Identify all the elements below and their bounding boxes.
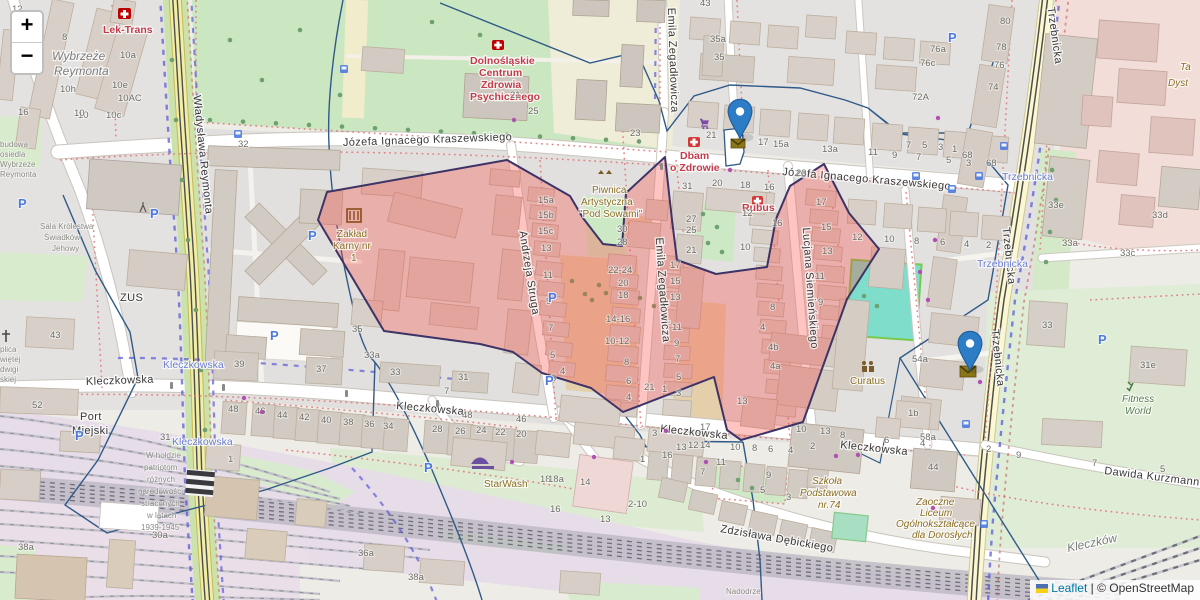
svg-text:22-24: 22-24 bbox=[608, 265, 632, 276]
svg-text:Karny nr: Karny nr bbox=[333, 241, 371, 252]
svg-text:8: 8 bbox=[914, 236, 919, 247]
svg-text:Szkoła: Szkoła bbox=[812, 476, 842, 487]
svg-text:2: 2 bbox=[986, 444, 991, 455]
svg-text:76a: 76a bbox=[930, 44, 947, 55]
svg-text:23: 23 bbox=[630, 128, 641, 139]
svg-text:P: P bbox=[948, 30, 957, 45]
svg-text:31: 31 bbox=[682, 181, 693, 192]
svg-text:1: 1 bbox=[952, 144, 957, 155]
svg-text:17: 17 bbox=[670, 260, 681, 271]
svg-text:1: 1 bbox=[662, 384, 667, 395]
svg-text:2: 2 bbox=[810, 441, 815, 452]
svg-text:26: 26 bbox=[455, 426, 466, 437]
svg-text:patriotom: patriotom bbox=[144, 463, 178, 472]
svg-text:osiedla: osiedla bbox=[0, 150, 26, 159]
svg-text:Fitness: Fitness bbox=[1122, 394, 1154, 405]
svg-text:Kleczkowska: Kleczkowska bbox=[163, 359, 224, 371]
svg-text:11: 11 bbox=[716, 457, 726, 468]
svg-text:33e: 33e bbox=[1048, 200, 1064, 211]
svg-text:P: P bbox=[424, 460, 433, 475]
svg-text:33a: 33a bbox=[364, 350, 381, 361]
svg-text:22: 22 bbox=[495, 427, 506, 438]
svg-text:13: 13 bbox=[676, 442, 687, 453]
svg-text:o Zdrowie: o Zdrowie bbox=[670, 162, 720, 174]
svg-text:14: 14 bbox=[700, 440, 711, 451]
svg-text:13: 13 bbox=[822, 246, 833, 257]
svg-text:14-16: 14-16 bbox=[606, 314, 630, 325]
svg-text:54a: 54a bbox=[912, 354, 929, 365]
svg-text:18a: 18a bbox=[548, 474, 565, 485]
svg-text:4: 4 bbox=[760, 322, 765, 333]
svg-text:W hołdzie: W hołdzie bbox=[146, 451, 182, 460]
svg-text:76: 76 bbox=[994, 60, 1005, 71]
svg-text:10h: 10h bbox=[60, 84, 76, 95]
svg-text:31: 31 bbox=[160, 432, 171, 443]
svg-text:30: 30 bbox=[617, 224, 628, 235]
svg-text:dwigi: dwigi bbox=[0, 365, 18, 374]
svg-text:10: 10 bbox=[74, 108, 85, 119]
svg-text:34: 34 bbox=[383, 421, 394, 432]
svg-text:5: 5 bbox=[676, 372, 681, 383]
svg-text:4: 4 bbox=[964, 239, 969, 250]
svg-text:17: 17 bbox=[700, 422, 711, 433]
svg-text:28: 28 bbox=[617, 237, 628, 248]
svg-text:3: 3 bbox=[786, 492, 791, 503]
svg-text:Dolnośląskie: Dolnośląskie bbox=[470, 55, 535, 67]
svg-text:nr.74: nr.74 bbox=[818, 500, 841, 511]
svg-text:Centrum: Centrum bbox=[479, 67, 522, 79]
svg-text:P: P bbox=[270, 328, 279, 343]
svg-text:9: 9 bbox=[674, 338, 679, 349]
svg-text:43: 43 bbox=[700, 0, 711, 9]
svg-text:18: 18 bbox=[618, 290, 629, 301]
svg-text:3: 3 bbox=[676, 388, 681, 399]
svg-text:9: 9 bbox=[1016, 450, 1021, 461]
svg-text:5: 5 bbox=[946, 155, 951, 166]
svg-text:narodowości: narodowości bbox=[138, 487, 183, 496]
svg-text:Wybrzeże: Wybrzeże bbox=[52, 49, 106, 63]
svg-text:7: 7 bbox=[548, 323, 553, 334]
svg-text:P: P bbox=[150, 206, 159, 221]
svg-text:40: 40 bbox=[321, 415, 332, 426]
svg-text:Trzebnicka: Trzebnicka bbox=[1002, 171, 1053, 183]
svg-text:12: 12 bbox=[688, 440, 699, 451]
svg-text:P: P bbox=[308, 228, 317, 243]
svg-text:Ogólnokształcące: Ogólnokształcące bbox=[896, 519, 975, 530]
svg-text:4: 4 bbox=[626, 392, 631, 403]
svg-text:Lek-Trans: Lek-Trans bbox=[103, 24, 153, 36]
svg-text:37: 37 bbox=[316, 364, 327, 375]
svg-text:18: 18 bbox=[740, 180, 751, 191]
svg-text:15: 15 bbox=[670, 276, 681, 287]
svg-text:10a: 10a bbox=[120, 50, 137, 61]
svg-text:43: 43 bbox=[50, 330, 61, 341]
svg-text:72A: 72A bbox=[912, 92, 930, 103]
svg-text:różnych: różnych bbox=[147, 475, 175, 484]
svg-text:17: 17 bbox=[758, 137, 769, 148]
svg-text:Curatus: Curatus bbox=[850, 376, 885, 387]
svg-text:68: 68 bbox=[962, 150, 973, 161]
svg-text:74: 74 bbox=[988, 82, 999, 93]
svg-text:StarWash: StarWash bbox=[484, 479, 528, 490]
svg-text:21: 21 bbox=[686, 245, 697, 256]
svg-text:4: 4 bbox=[560, 366, 565, 377]
svg-text:7: 7 bbox=[906, 140, 911, 151]
svg-text:36: 36 bbox=[364, 419, 375, 430]
svg-text:16: 16 bbox=[18, 107, 29, 118]
svg-text:5: 5 bbox=[550, 350, 555, 361]
svg-text:15a: 15a bbox=[538, 195, 555, 206]
svg-text:14: 14 bbox=[580, 477, 591, 488]
svg-text:Psychicznego: Psychicznego bbox=[470, 91, 540, 103]
svg-text:33a: 33a bbox=[1062, 238, 1079, 249]
svg-text:Dyst: Dyst bbox=[1168, 78, 1189, 89]
svg-text:w latach: w latach bbox=[146, 511, 176, 520]
svg-text:8: 8 bbox=[62, 32, 67, 43]
svg-text:Podstawowa: Podstawowa bbox=[800, 488, 857, 499]
svg-text:budowa: budowa bbox=[0, 140, 29, 149]
svg-text:24: 24 bbox=[476, 425, 487, 436]
svg-text:16: 16 bbox=[764, 182, 775, 193]
svg-text:P: P bbox=[548, 290, 557, 305]
svg-text:39: 39 bbox=[234, 359, 245, 370]
svg-text:21: 21 bbox=[706, 130, 717, 141]
svg-text:5: 5 bbox=[1160, 464, 1165, 475]
svg-text:68: 68 bbox=[986, 158, 997, 169]
svg-text:13: 13 bbox=[737, 396, 748, 407]
svg-text:46: 46 bbox=[516, 414, 527, 425]
svg-text:48: 48 bbox=[228, 404, 239, 415]
svg-text:Reymonta: Reymonta bbox=[0, 170, 37, 179]
svg-text:Zakład: Zakład bbox=[337, 229, 367, 240]
svg-text:Reymonta: Reymonta bbox=[54, 64, 109, 78]
svg-text:ZUS: ZUS bbox=[120, 292, 143, 304]
svg-text:21: 21 bbox=[510, 90, 521, 101]
svg-text:11: 11 bbox=[543, 270, 553, 281]
svg-text:Zaoczne: Zaoczne bbox=[915, 497, 955, 508]
svg-text:35a: 35a bbox=[710, 34, 727, 45]
svg-text:P: P bbox=[18, 196, 27, 211]
svg-text:Wybrzeże: Wybrzeże bbox=[0, 160, 36, 169]
svg-text:38a: 38a bbox=[18, 542, 35, 553]
svg-text:30a: 30a bbox=[152, 530, 169, 541]
svg-text:21: 21 bbox=[644, 382, 655, 393]
svg-text:11: 11 bbox=[672, 322, 682, 333]
svg-text:2: 2 bbox=[986, 240, 991, 251]
svg-text:World: World bbox=[1125, 406, 1152, 417]
svg-text:10-12: 10-12 bbox=[605, 336, 629, 347]
svg-text:13: 13 bbox=[820, 426, 831, 437]
svg-text:9: 9 bbox=[818, 297, 823, 308]
svg-text:78: 78 bbox=[996, 42, 1007, 53]
svg-text:33: 33 bbox=[390, 367, 401, 378]
svg-text:1b: 1b bbox=[908, 408, 919, 419]
svg-text:P: P bbox=[545, 373, 554, 388]
svg-text:13: 13 bbox=[600, 514, 611, 525]
svg-text:6: 6 bbox=[626, 376, 631, 387]
svg-text:Piwnica: Piwnica bbox=[592, 185, 627, 196]
svg-text:4: 4 bbox=[920, 438, 925, 449]
svg-text:Sala Królestwa: Sala Królestwa bbox=[40, 222, 94, 231]
svg-text:6: 6 bbox=[940, 237, 945, 248]
svg-text:33c: 33c bbox=[1120, 248, 1136, 259]
svg-text:10: 10 bbox=[740, 242, 751, 253]
svg-text:11: 11 bbox=[815, 271, 825, 282]
svg-text:20: 20 bbox=[618, 278, 629, 289]
svg-text:12: 12 bbox=[852, 232, 863, 243]
svg-text:13a: 13a bbox=[822, 144, 839, 155]
svg-text:12: 12 bbox=[742, 208, 753, 219]
svg-text:Liceum: Liceum bbox=[920, 508, 952, 519]
svg-text:17: 17 bbox=[816, 197, 827, 208]
svg-text:10: 10 bbox=[884, 234, 895, 245]
svg-text:25: 25 bbox=[528, 106, 539, 117]
svg-text:48: 48 bbox=[462, 410, 473, 421]
svg-text:38: 38 bbox=[343, 417, 354, 428]
svg-text:P: P bbox=[1098, 332, 1107, 347]
svg-text:7: 7 bbox=[700, 467, 705, 478]
svg-text:15b: 15b bbox=[538, 210, 554, 221]
svg-text:11: 11 bbox=[868, 147, 878, 158]
svg-text:Jehowy: Jehowy bbox=[52, 244, 79, 253]
svg-text:8: 8 bbox=[840, 430, 845, 441]
svg-text:23: 23 bbox=[796, 168, 807, 179]
svg-text:36a: 36a bbox=[358, 548, 375, 559]
svg-text:15a: 15a bbox=[773, 139, 790, 150]
svg-text:6: 6 bbox=[884, 435, 889, 446]
svg-text:Świadków: Świadków bbox=[44, 233, 80, 242]
svg-text:7: 7 bbox=[675, 354, 680, 365]
svg-text:8: 8 bbox=[752, 443, 757, 454]
svg-text:P: P bbox=[75, 428, 84, 443]
svg-text:10e: 10e bbox=[112, 80, 128, 91]
svg-text:31: 31 bbox=[458, 372, 469, 383]
svg-text:80: 80 bbox=[1000, 16, 1011, 27]
svg-text:7: 7 bbox=[1092, 458, 1097, 469]
svg-text:6: 6 bbox=[768, 444, 773, 455]
svg-text:15c: 15c bbox=[538, 226, 554, 237]
svg-text:33: 33 bbox=[1042, 320, 1053, 331]
svg-text:16: 16 bbox=[662, 450, 673, 461]
svg-text:38a: 38a bbox=[408, 572, 425, 583]
svg-text:20: 20 bbox=[712, 178, 723, 189]
svg-text:3: 3 bbox=[938, 142, 943, 153]
svg-text:"Pod Sowami": "Pod Sowami" bbox=[579, 209, 643, 220]
svg-text:dla Dorosłych: dla Dorosłych bbox=[912, 530, 973, 541]
svg-text:8: 8 bbox=[624, 357, 629, 368]
svg-text:7: 7 bbox=[916, 152, 921, 163]
svg-text:25: 25 bbox=[686, 225, 697, 236]
svg-text:Nadodrze: Nadodrze bbox=[726, 587, 761, 596]
svg-text:5: 5 bbox=[760, 485, 765, 496]
svg-text:Artystyczna: Artystyczna bbox=[581, 197, 633, 208]
svg-text:Dbam: Dbam bbox=[680, 150, 709, 162]
svg-text:8: 8 bbox=[770, 302, 775, 313]
svg-text:straconych: straconych bbox=[141, 499, 180, 508]
svg-text:10: 10 bbox=[796, 424, 807, 435]
svg-text:13: 13 bbox=[541, 243, 552, 254]
svg-text:44: 44 bbox=[277, 410, 288, 421]
svg-text:10AC: 10AC bbox=[118, 93, 142, 104]
svg-text:1: 1 bbox=[640, 454, 645, 465]
svg-text:44: 44 bbox=[928, 462, 939, 473]
svg-text:7: 7 bbox=[444, 386, 449, 397]
svg-text:Trzebnicka: Trzebnicka bbox=[977, 258, 1028, 270]
svg-text:20: 20 bbox=[516, 429, 527, 440]
svg-text:28: 28 bbox=[432, 424, 443, 435]
svg-text:Kleczkowska: Kleczkowska bbox=[172, 436, 233, 448]
svg-text:2-10: 2-10 bbox=[628, 499, 647, 510]
svg-text:35: 35 bbox=[352, 324, 363, 335]
svg-text:35: 35 bbox=[714, 52, 725, 63]
svg-text:więtej: więtej bbox=[0, 355, 21, 364]
svg-text:76c: 76c bbox=[920, 58, 936, 69]
svg-text:Kleczkowska: Kleczkowska bbox=[86, 374, 155, 388]
svg-text:Port: Port bbox=[80, 411, 102, 423]
svg-text:Ta: Ta bbox=[1180, 62, 1191, 73]
svg-text:3: 3 bbox=[652, 428, 657, 439]
svg-text:skiej: skiej bbox=[0, 375, 16, 384]
svg-text:4a: 4a bbox=[770, 361, 781, 372]
svg-text:4: 4 bbox=[788, 445, 793, 456]
svg-text:16: 16 bbox=[772, 218, 783, 229]
svg-text:1: 1 bbox=[351, 253, 357, 264]
svg-text:33d: 33d bbox=[1152, 210, 1168, 221]
svg-text:plica: plica bbox=[0, 345, 17, 354]
svg-text:32: 32 bbox=[238, 139, 249, 150]
svg-text:52: 52 bbox=[32, 400, 43, 411]
svg-text:10c: 10c bbox=[106, 110, 122, 121]
svg-text:9: 9 bbox=[892, 150, 897, 161]
svg-text:5: 5 bbox=[922, 140, 927, 151]
svg-text:31e: 31e bbox=[1140, 360, 1156, 371]
svg-text:42: 42 bbox=[299, 412, 310, 423]
svg-text:9: 9 bbox=[766, 470, 771, 481]
svg-text:10: 10 bbox=[730, 442, 741, 453]
svg-text:27: 27 bbox=[686, 214, 697, 225]
svg-text:1: 1 bbox=[228, 454, 233, 465]
svg-text:16: 16 bbox=[550, 504, 561, 515]
svg-text:13: 13 bbox=[670, 292, 681, 303]
svg-text:4b: 4b bbox=[768, 342, 779, 353]
svg-text:15: 15 bbox=[821, 222, 832, 233]
